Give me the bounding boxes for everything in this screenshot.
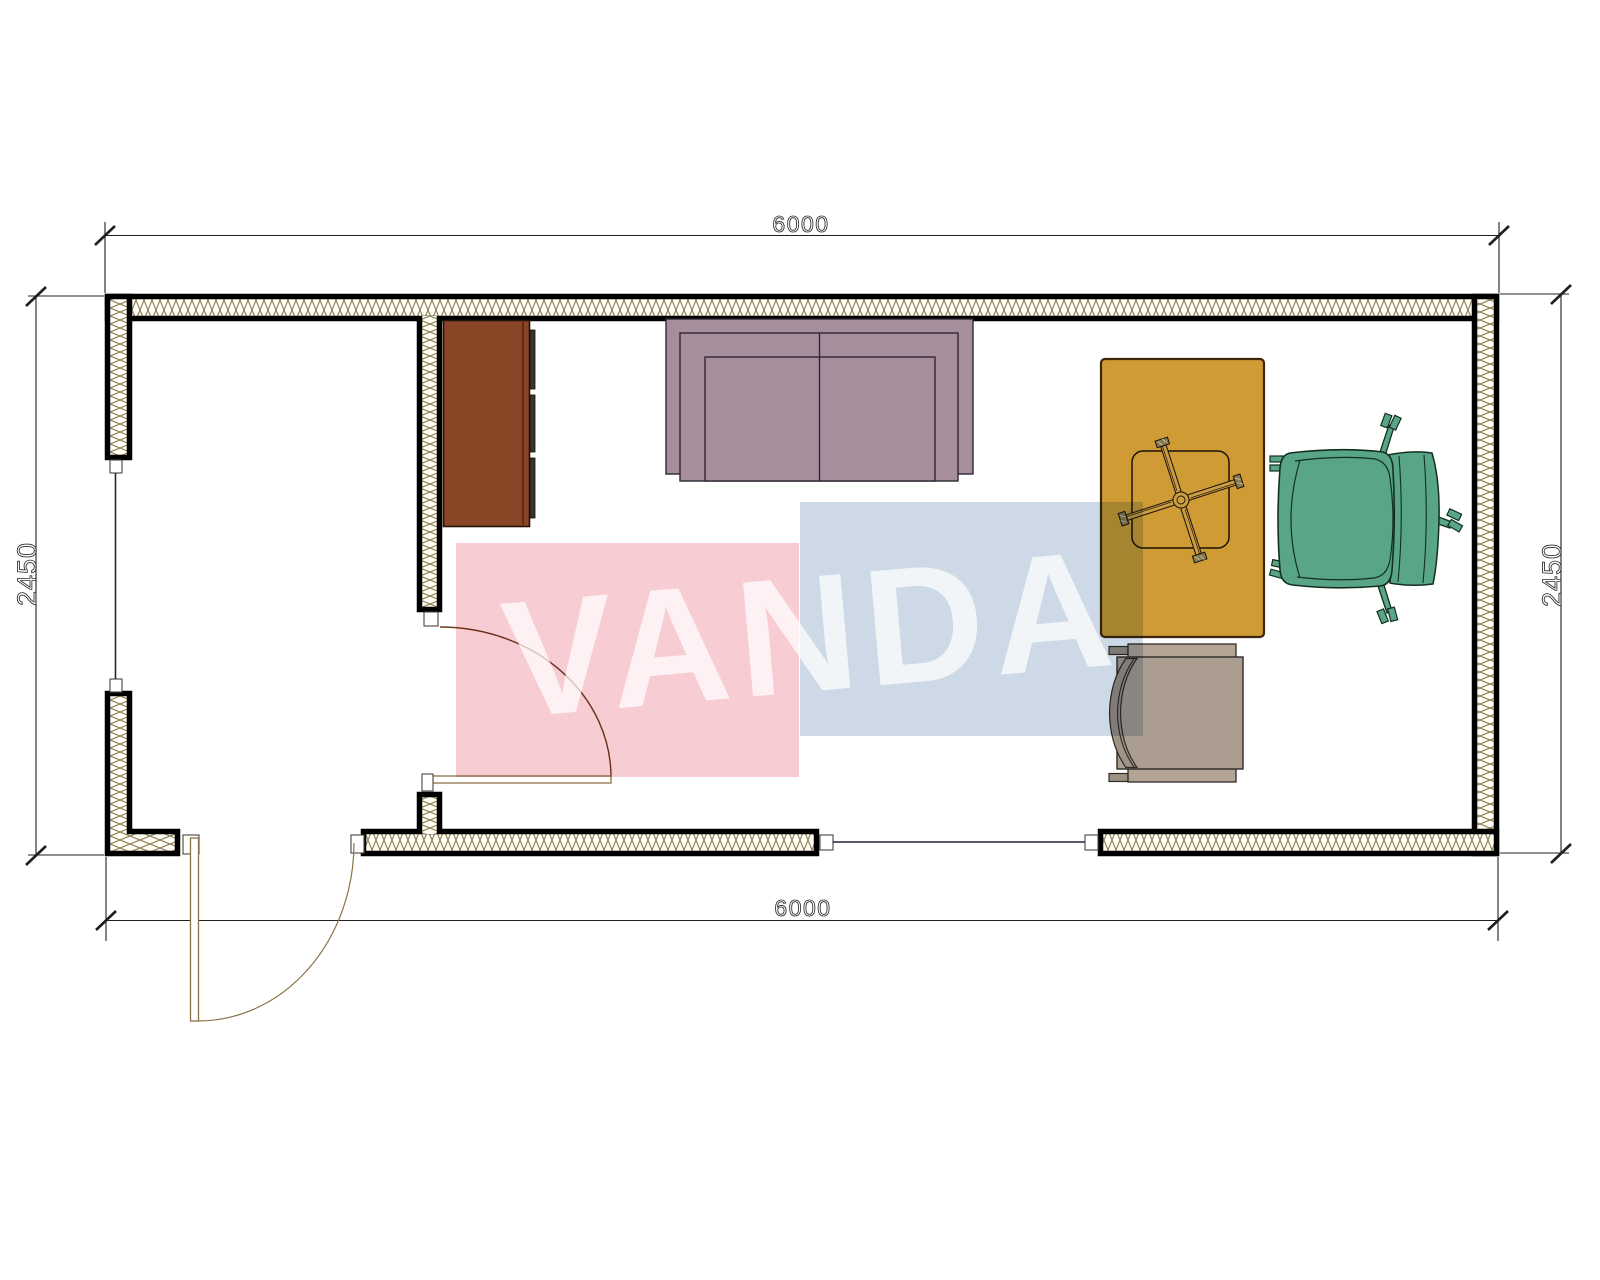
svg-text:2450: 2450 [12, 542, 42, 606]
svg-text:2450: 2450 [1537, 543, 1567, 607]
svg-text:6000: 6000 [772, 211, 829, 237]
svg-text:6000: 6000 [774, 895, 831, 921]
